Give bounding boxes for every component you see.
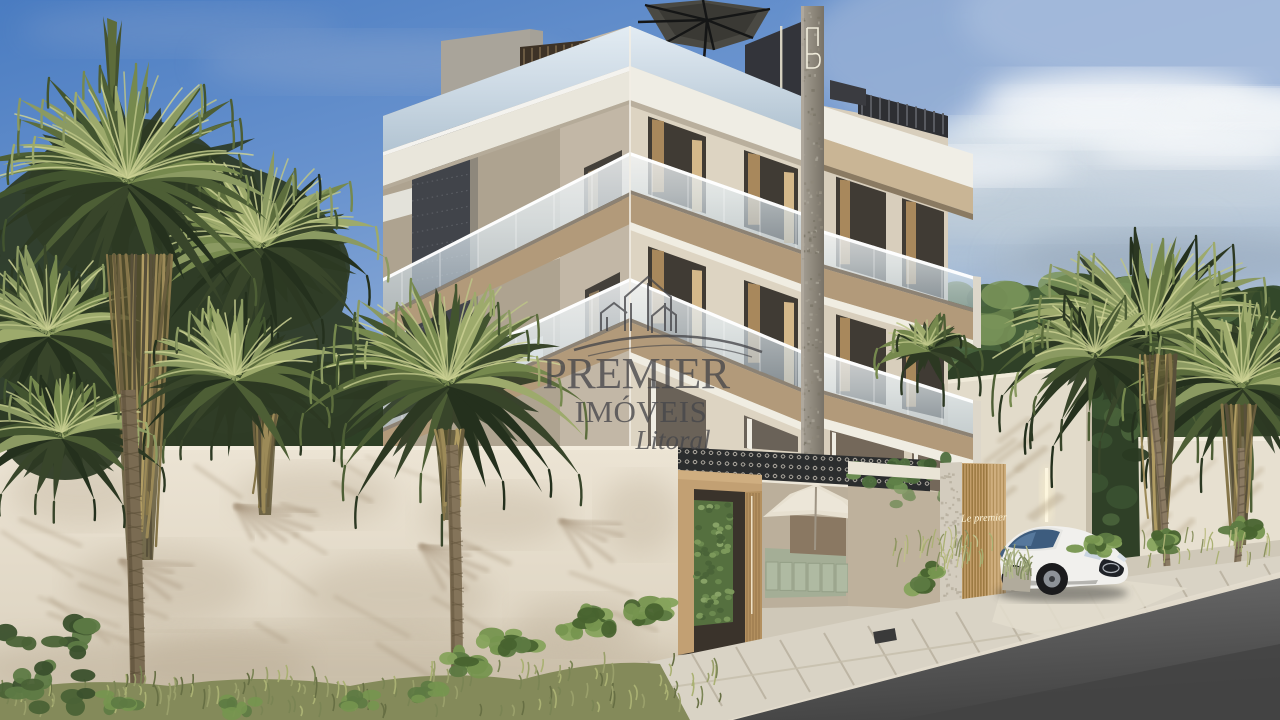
svg-text:Litoral: Litoral bbox=[634, 425, 710, 455]
svg-text:IMÓVEIS: IMÓVEIS bbox=[575, 394, 708, 429]
svg-text:Le premier: Le premier bbox=[960, 512, 1008, 525]
svg-text:PREMIER: PREMIER bbox=[542, 349, 730, 398]
